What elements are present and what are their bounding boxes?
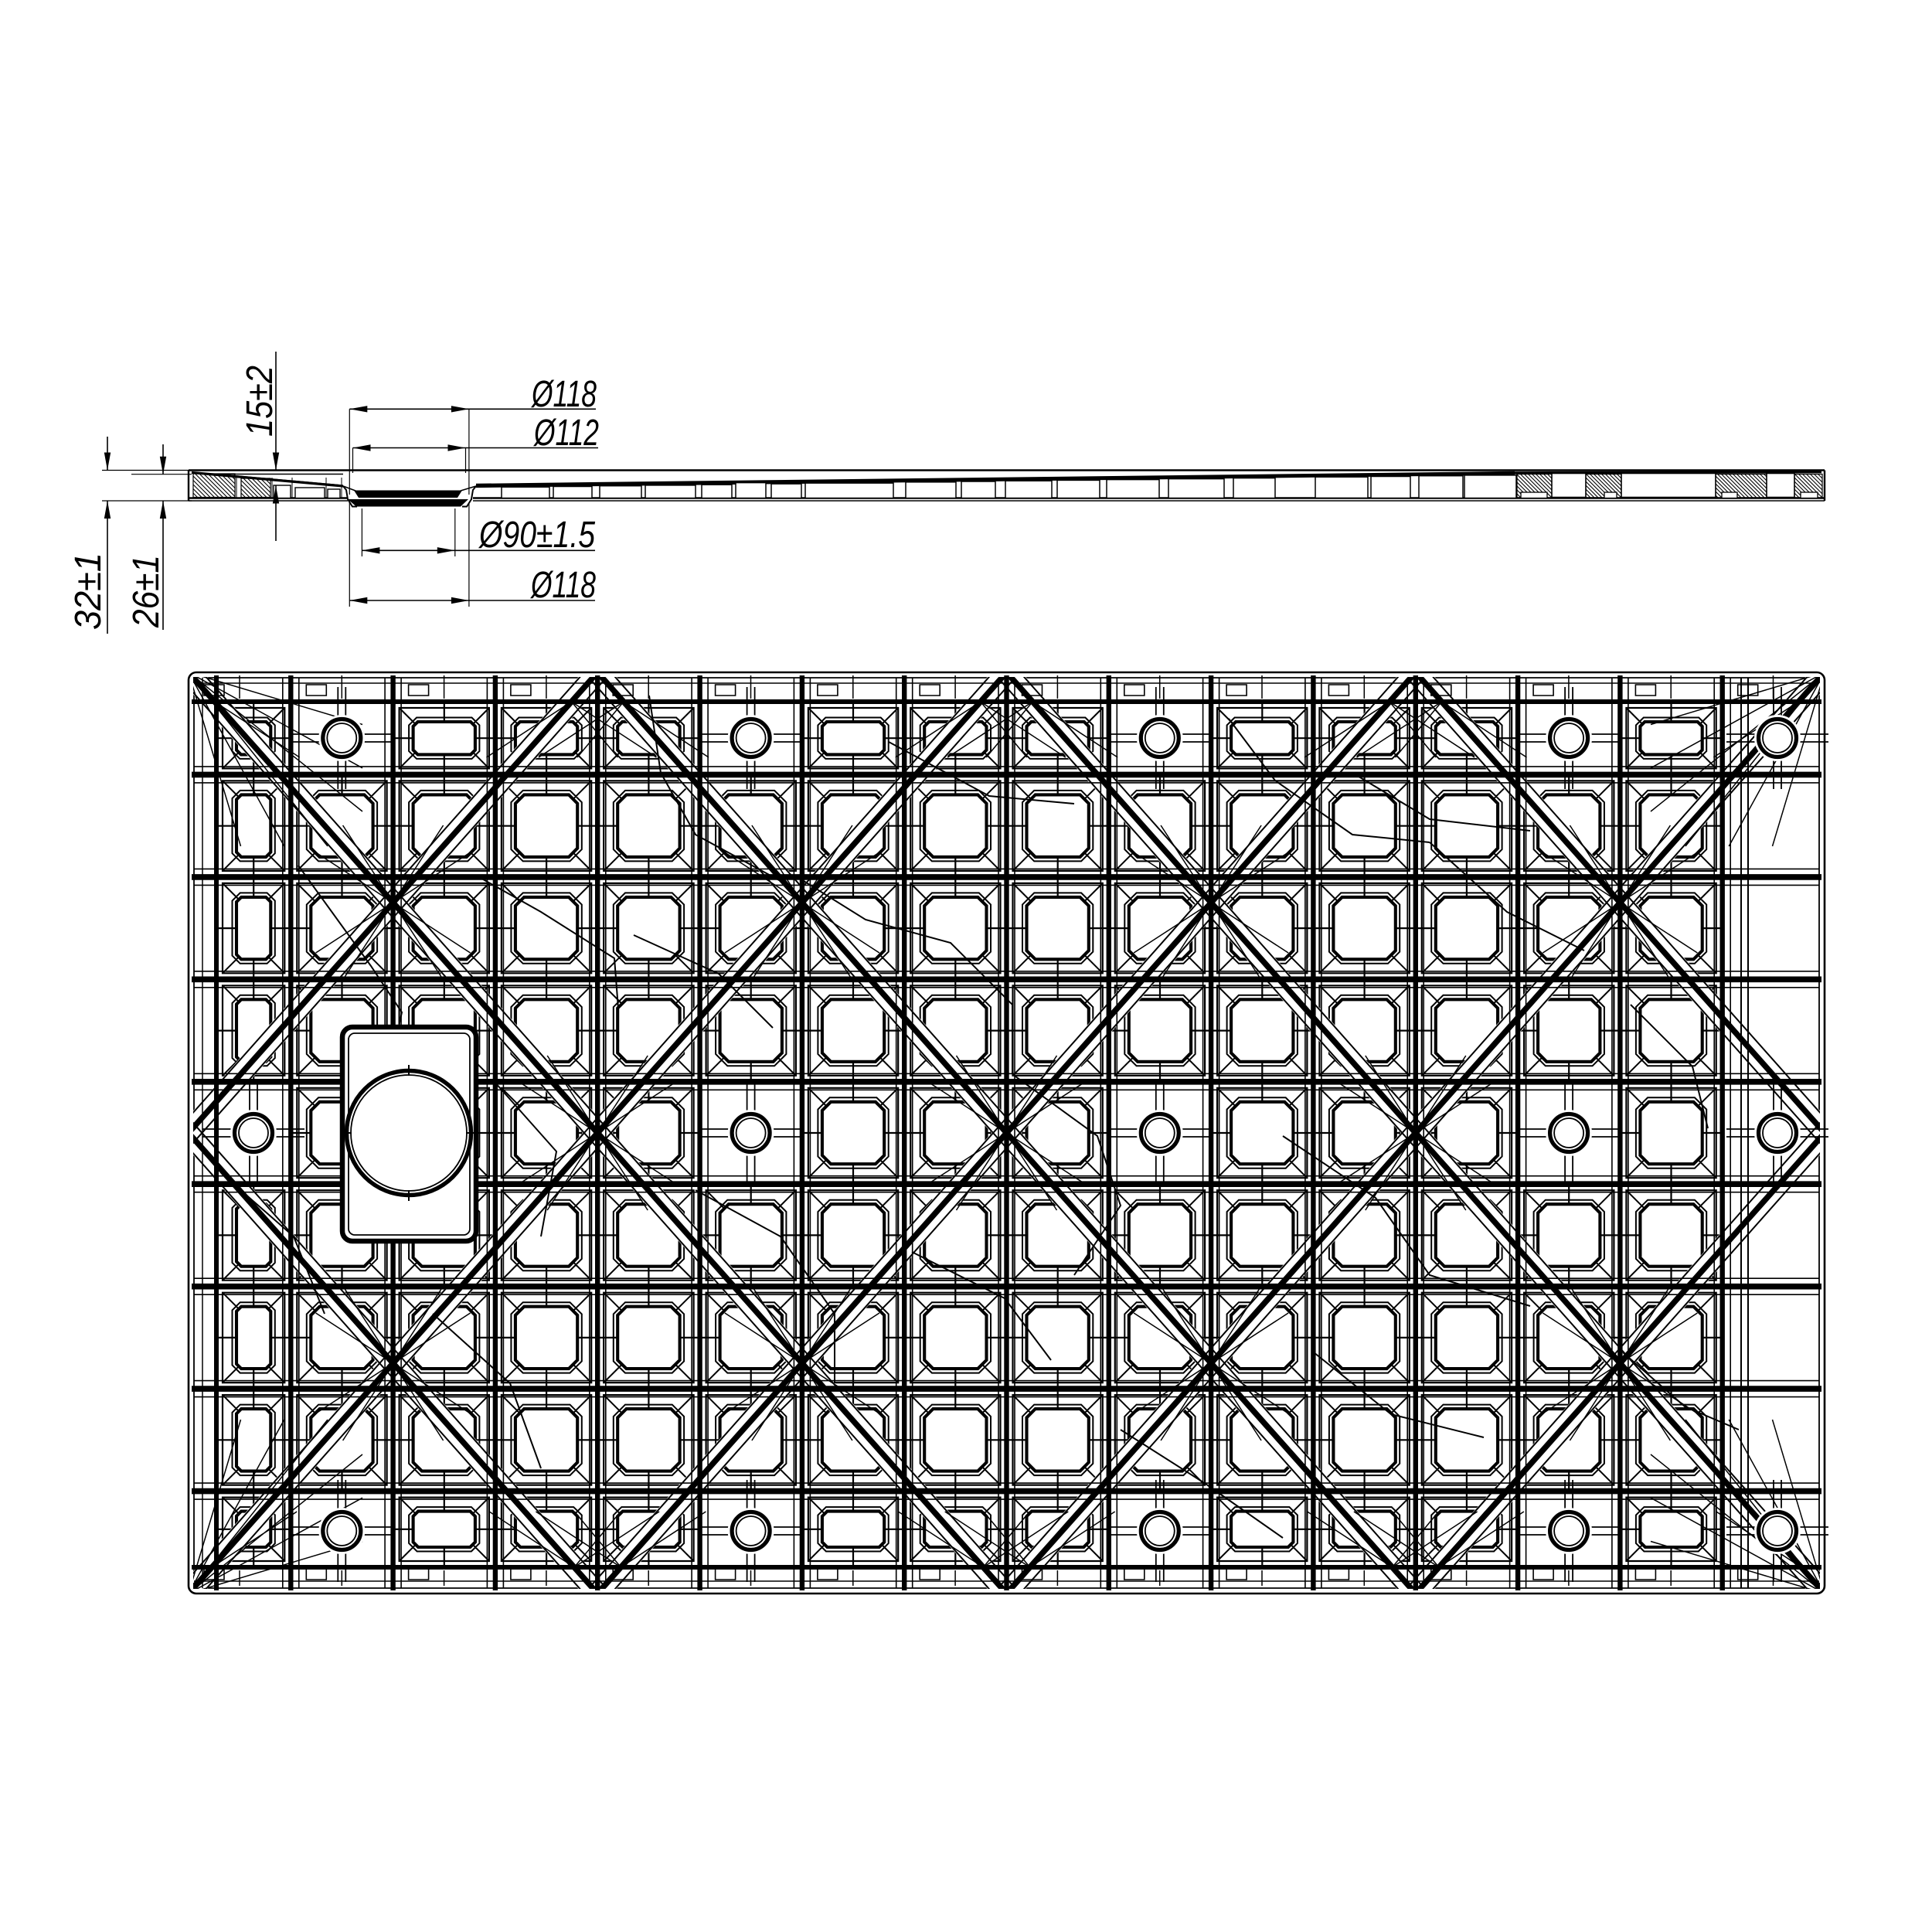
svg-text:26±1: 26±1 xyxy=(126,555,167,628)
svg-text:32±1: 32±1 xyxy=(68,553,109,630)
svg-text:Ø90±1.5: Ø90±1.5 xyxy=(478,515,595,556)
svg-text:Ø112: Ø112 xyxy=(533,413,599,454)
svg-text:Ø118: Ø118 xyxy=(531,374,597,415)
svg-text:15±2: 15±2 xyxy=(240,366,281,437)
svg-text:Ø118: Ø118 xyxy=(530,565,597,606)
